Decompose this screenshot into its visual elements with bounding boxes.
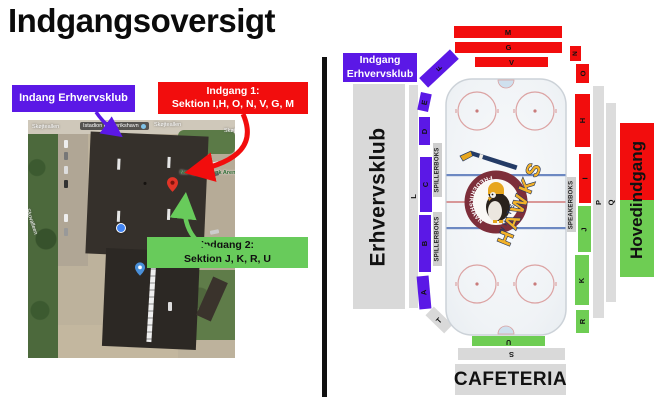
map-car — [64, 180, 68, 188]
map-trees-left — [28, 120, 58, 358]
section-h-label: H — [578, 118, 587, 123]
callout-erhvervsklub: Indang Erhvervsklub — [12, 85, 135, 112]
section-o: O — [576, 64, 589, 83]
section-i-label: I — [581, 177, 590, 179]
ice-rink: FREDERIKSHAVN WHITE HAWKS — [445, 78, 567, 336]
section-g: G — [455, 42, 562, 53]
section-v-label: V — [509, 58, 514, 67]
place-label-text: Istadion Frederikshavn — [83, 123, 139, 129]
section-d-label: D — [420, 128, 429, 133]
speakerboks-label: SPEAKERBOKS — [569, 180, 575, 229]
section-d: D — [419, 117, 430, 145]
map-car — [168, 302, 172, 311]
map-car — [64, 228, 68, 236]
section-l-label: L — [409, 194, 418, 199]
map-roof-vent — [167, 209, 170, 220]
section-l: L — [409, 85, 418, 308]
stand-erhvervsklub: Erhvervsklub — [353, 84, 405, 309]
section-a: A — [417, 276, 432, 310]
street-label: Skøjteallen — [224, 128, 235, 134]
map-roof-vent — [167, 157, 170, 168]
arena-map-label: Nordjyske Bank Arena — [180, 170, 235, 176]
arena-entrance-erhvervsklub-box: Indgang Erhvervsklub — [343, 53, 417, 82]
section-f-label: F — [434, 64, 444, 73]
section-r-label: R — [578, 319, 587, 324]
street-label: Skøjteallen — [154, 122, 181, 128]
section-e-label: E — [420, 99, 430, 106]
main-entrance-hovedindgang: Hovedindgang — [620, 123, 654, 277]
section-h: H — [575, 94, 590, 147]
section-p-label: P — [594, 199, 603, 204]
map-roof-vent — [117, 159, 120, 170]
section-c-label: C — [421, 182, 430, 187]
section-i: I — [579, 154, 591, 203]
section-c: C — [420, 157, 432, 212]
main-entrance-label: Hovedindgang — [627, 141, 647, 259]
map-car — [64, 214, 68, 222]
arena-entrance-line1: Indgang — [360, 54, 401, 68]
map-car — [64, 152, 68, 160]
callout-indgang-2-sections: Sektion J, K, R, U — [184, 253, 271, 266]
section-k: K — [575, 255, 589, 305]
map-roof-vent — [117, 211, 120, 222]
map-parking-left — [58, 134, 88, 266]
section-j: J — [578, 206, 591, 252]
map-skylight — [146, 256, 156, 342]
callout-indgang-2: Indgang 2: Sektion J, K, R, U — [147, 237, 308, 268]
speakerboks: SPEAKERBOKS — [567, 177, 576, 232]
page-title: Indgangsoversigt — [8, 2, 275, 40]
spillerboks-1-label: SPILLERBOKS — [435, 148, 441, 193]
street-label: Skøjteallen — [32, 124, 59, 130]
stand-erhvervsklub-label: Erhvervsklub — [367, 127, 391, 266]
section-n-label: N — [572, 51, 579, 56]
callout-indgang-1: Indgang 1: Sektion I,H, O, N, V, G, M — [158, 82, 308, 114]
map-car — [64, 166, 68, 174]
section-v: V — [475, 57, 548, 67]
section-q: Q — [606, 103, 616, 302]
map-car — [64, 140, 68, 148]
section-s: S — [458, 348, 565, 360]
spillerboks-2-label: SPILLERBOKS — [435, 217, 441, 262]
callout-indgang-1-title: Indgang 1: — [206, 85, 259, 98]
map-roof-dot — [143, 182, 146, 185]
callout-indgang-2-title: Indgang 2: — [201, 239, 254, 252]
section-m-label: M — [505, 28, 511, 37]
section-o-label: O — [578, 71, 587, 77]
arena-entrance-line2: Erhvervsklub — [347, 68, 414, 82]
spillerboks-1: SPILLERBOKS — [433, 143, 442, 197]
spillerboks-2: SPILLERBOKS — [433, 212, 442, 266]
section-r: R — [576, 310, 589, 333]
section-b-label: B — [420, 241, 429, 246]
section-q-label: Q — [607, 200, 616, 206]
section-t-label: T — [434, 315, 444, 325]
section-u-label: U — [506, 338, 511, 345]
section-k-label: K — [577, 277, 586, 282]
section-n: N — [570, 46, 581, 61]
blue-map-pin-icon — [135, 262, 145, 276]
section-j-label: J — [580, 227, 589, 231]
section-b: B — [419, 215, 431, 272]
blue-location-dot-icon — [116, 223, 126, 233]
cafeteria-label: CAFETERIA — [454, 369, 567, 391]
red-map-pin-icon — [167, 177, 178, 192]
place-pin-icon — [141, 124, 146, 129]
section-g-label: G — [506, 43, 512, 52]
section-e: E — [417, 92, 432, 112]
section-p: P — [593, 86, 604, 318]
place-label: Istadion Frederikshavn — [80, 122, 149, 130]
section-a-label: A — [419, 289, 428, 295]
callout-indgang-1-sections: Sektion I,H, O, N, V, G, M — [172, 98, 294, 111]
vertical-divider — [322, 57, 327, 397]
callout-erhvervsklub-text: Indang Erhvervsklub — [19, 92, 128, 106]
section-s-label: S — [509, 350, 514, 359]
cafeteria: CAFETERIA — [455, 364, 566, 395]
section-u: U — [472, 336, 545, 346]
section-m: M — [454, 26, 562, 38]
